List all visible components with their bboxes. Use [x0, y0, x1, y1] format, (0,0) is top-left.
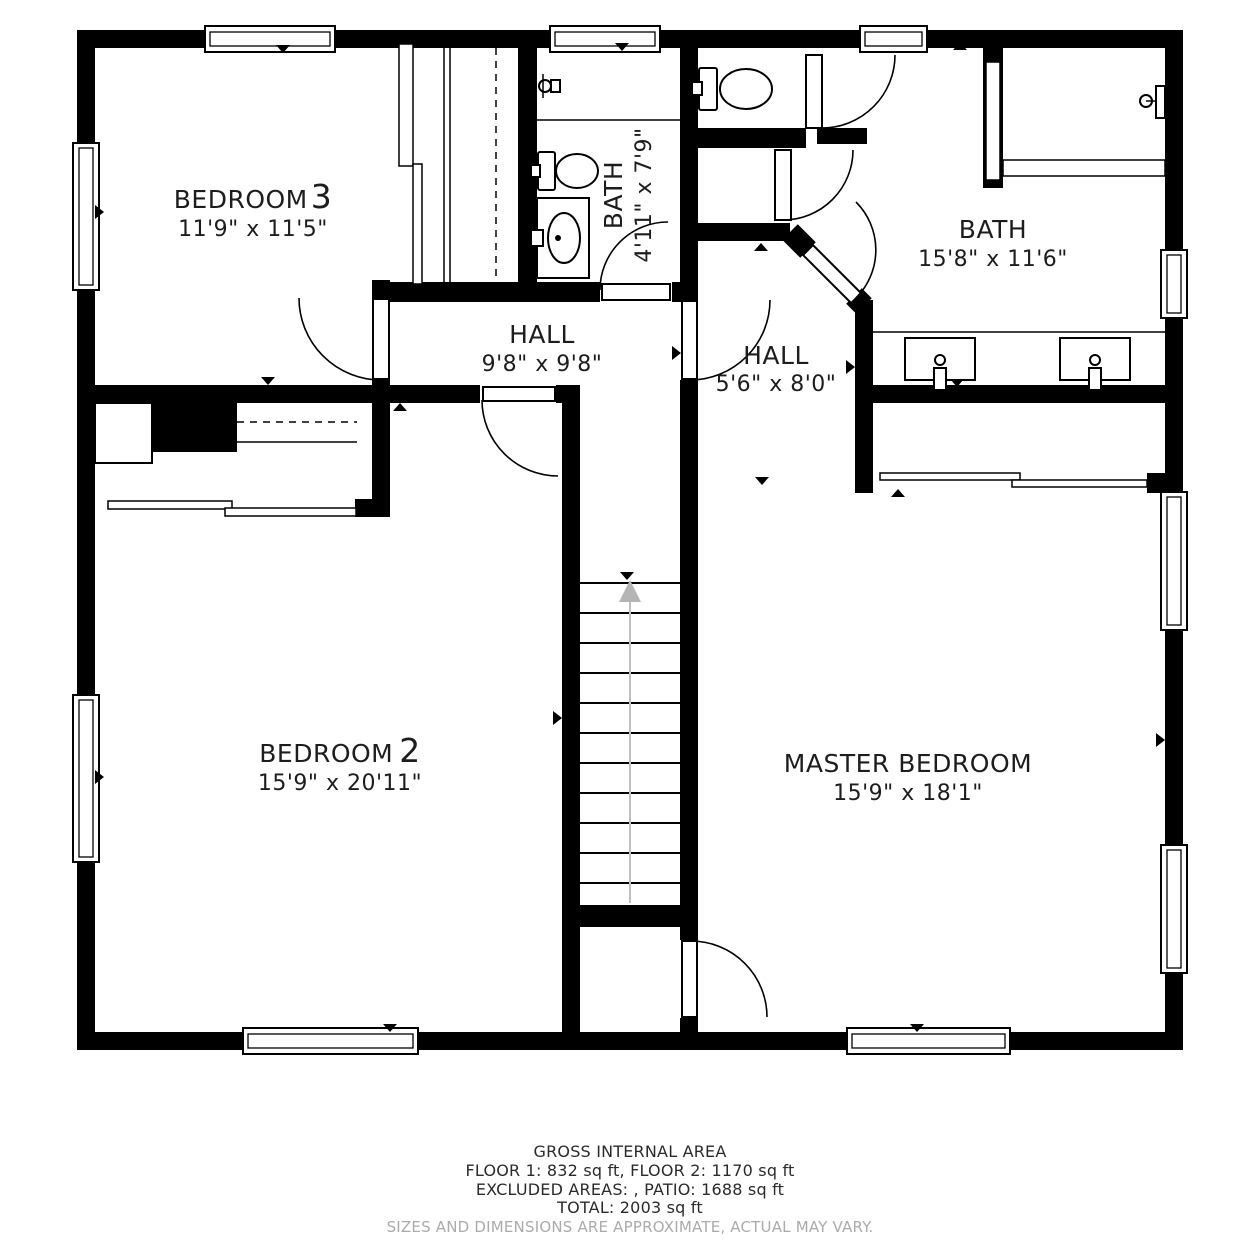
master-closet-sliders [880, 473, 1147, 487]
doors [299, 55, 895, 1017]
window-top-right [860, 26, 927, 52]
room-label-bath-small: BATH [599, 161, 628, 229]
room-label-bedroom2: BEDROOM2 [259, 731, 421, 770]
window-master-right-upper [1161, 492, 1187, 630]
marker-hall-bottom [393, 403, 407, 411]
door-wc [806, 55, 895, 128]
window-master-bottom [847, 1028, 1010, 1054]
wall-master-door-stub [680, 1018, 698, 1032]
wall-bedroom2-closet-block [355, 499, 390, 517]
footer-disclaimer: SIZES AND DIMENSIONS ARE APPROXIMATE, AC… [387, 1218, 874, 1236]
marker-halls-passage [672, 346, 681, 360]
window-bedroom2-bottom [243, 1028, 418, 1054]
wall-hall-top [372, 282, 600, 302]
wall-vanity-bottom [855, 385, 1165, 403]
wall-wc-left [680, 38, 698, 300]
door-bedroom2 [482, 387, 558, 476]
footer: GROSS INTERNAL AREA FLOOR 1: 832 sq ft, … [387, 1142, 874, 1236]
marker-hall-small-bottom [755, 477, 769, 485]
wall-bedroom2-closet-right [372, 403, 390, 513]
door-linen-closet [775, 150, 853, 220]
room-number-bedroom2: 2 [399, 731, 421, 770]
bedroom3-closet [399, 44, 496, 284]
room-dim-hall-small: 5'6" x 8'0" [716, 372, 837, 397]
marker-hall-small-right [846, 360, 855, 374]
room-dim-master: 15'9" x 18'1" [833, 781, 983, 806]
room-dim-bedroom2: 15'9" x 20'11" [258, 771, 422, 796]
vanity-double-sink [873, 332, 1165, 390]
room-dim-bath-main: 15'8" x 11'6" [918, 247, 1068, 272]
footer-excluded-areas: EXCLUDED AREAS: , PATIO: 1688 sq ft [476, 1180, 784, 1199]
wall-stairs-bottom [562, 905, 692, 927]
window-bedroom3-top [205, 26, 335, 52]
footer-floor-areas: FLOOR 1: 832 sq ft, FLOOR 2: 1170 sq ft [466, 1161, 795, 1180]
floor-plan-page: BEDROOM3 11'9" x 11'5" BATH 4'11" x 7'9"… [0, 0, 1260, 1260]
door-master-bedroom [682, 941, 767, 1017]
footer-total: TOTAL: 2003 sq ft [556, 1198, 703, 1217]
room-label-hall-small: HALL [743, 341, 809, 370]
wall-stairs-left [562, 385, 580, 1032]
bedroom2-closet [95, 402, 357, 516]
room-dim-bath-small: 4'11" x 7'9" [632, 127, 657, 262]
room-name-bedroom3: BEDROOM [174, 185, 308, 214]
toilet-icon-bath-small [531, 152, 598, 190]
room-label-master: MASTER BEDROOM [784, 749, 1032, 778]
footer-title: GROSS INTERNAL AREA [533, 1142, 726, 1161]
room-label-hall-main: HALL [509, 320, 575, 349]
marker-master-closet [891, 489, 905, 497]
closet-void [152, 402, 237, 452]
room-name-bedroom2: BEDROOM [259, 739, 393, 768]
room-label-bath-main: BATH [959, 215, 1027, 244]
sink-icon-bath-small [531, 198, 589, 278]
wall-master-closet-block [1147, 473, 1165, 493]
room-dim-bedroom3: 11'9" x 11'5" [178, 217, 328, 242]
shower-enclosure [986, 62, 1165, 180]
window-bath-small-top [550, 26, 660, 52]
room-labels: BEDROOM3 11'9" x 11'5" BATH 4'11" x 7'9"… [174, 127, 1068, 806]
marker-hall-small-top [754, 243, 768, 251]
window-bath-main-right [1161, 250, 1187, 318]
wall-stairs-right [680, 380, 698, 940]
wall-wc-bottom [680, 128, 806, 148]
window-master-right-lower [1161, 845, 1187, 973]
marker-window-right [1156, 733, 1165, 747]
marker-bedroom3-wall [261, 377, 275, 385]
toilet-icon-wc [692, 68, 772, 110]
floor-plan-svg: BEDROOM3 11'9" x 11'5" BATH 4'11" x 7'9"… [0, 0, 1260, 1260]
wall-diagonal-upper [790, 232, 808, 250]
wall-hall-small-right [855, 300, 873, 493]
wall-vestibule-stub [817, 128, 867, 144]
marker-stairs-top [620, 572, 634, 580]
wall-bedroom3-bottom [88, 385, 480, 403]
room-dim-hall-main: 9'8" x 9'8" [482, 352, 603, 377]
marker-bedroom2-right-wall [553, 711, 562, 725]
wall-bedroom3-door-jamb-bottom [372, 378, 390, 403]
door-bath-main-diagonal [803, 202, 876, 303]
door-bedroom3 [299, 298, 389, 380]
room-number-bedroom3: 3 [311, 177, 333, 216]
room-label-bedroom3: BEDROOM3 [174, 177, 333, 216]
wall-linen-bottom [680, 223, 790, 241]
stairs [580, 580, 680, 903]
bathtub-faucet-icon [539, 74, 560, 98]
